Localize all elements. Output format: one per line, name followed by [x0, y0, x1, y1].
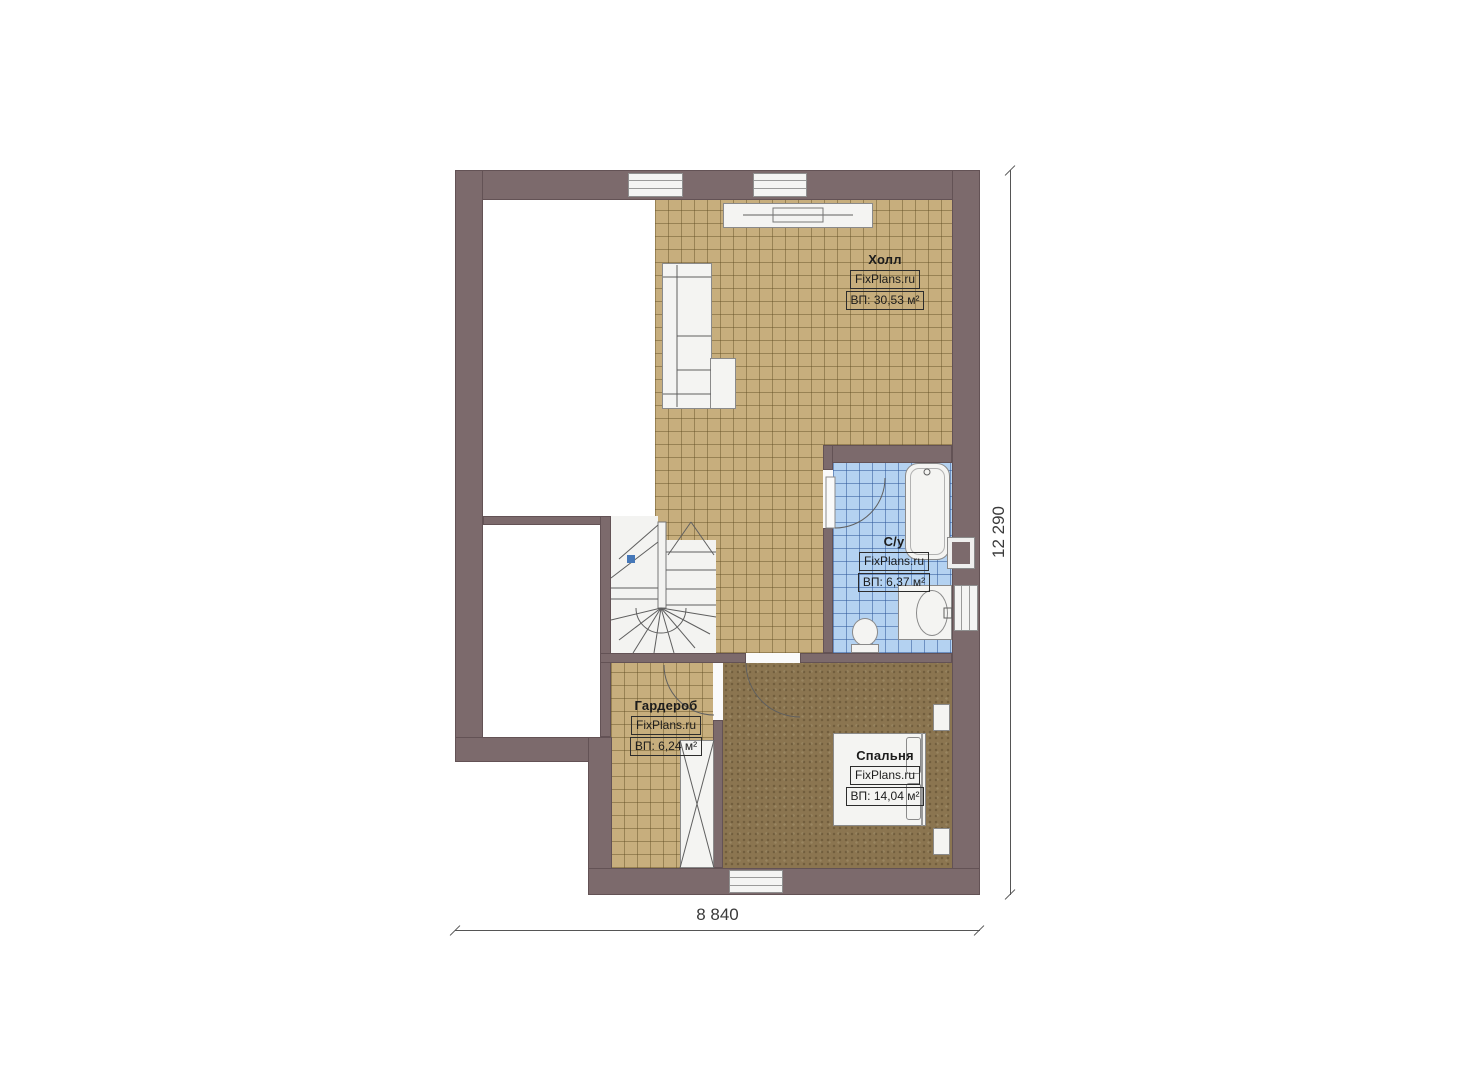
dimension-height-label: 12 290	[979, 492, 1019, 572]
inner-wall-corridor-left	[600, 653, 746, 663]
bedroom-area-label: ВП: 14,04 м²	[846, 787, 925, 806]
dimension-width-label: 8 840	[455, 905, 980, 925]
wardrobe-room-name: Гардероб	[634, 698, 697, 714]
wardrobe-door-opening	[713, 663, 723, 720]
toilet-bowl	[852, 618, 878, 646]
toilet-tank	[851, 644, 879, 653]
nightstand-bottom	[933, 828, 950, 855]
closet	[680, 740, 714, 868]
bedroom-room-name: Спальня	[856, 748, 914, 764]
bathroom-wall-top	[823, 445, 952, 463]
bathroom-label: С/у FixPlans.ru ВП: 6,37 м²	[855, 534, 933, 592]
outer-wall-top	[455, 170, 980, 200]
wardrobe-bedroom-wall	[713, 720, 723, 868]
stair-well	[611, 540, 716, 653]
outer-wall-left	[455, 170, 483, 762]
window-top-left	[628, 173, 683, 197]
void-room-lower	[483, 525, 600, 737]
window-bottom	[729, 870, 783, 893]
bedroom-label: Спальня FixPlans.ru ВП: 14,04 м²	[839, 748, 931, 806]
sink-basin	[916, 590, 948, 636]
inner-wall-voidroom-right	[600, 516, 611, 737]
wardrobe-label: Гардероб FixPlans.ru ВП: 6,24 м²	[625, 698, 707, 756]
wardrobe-watermark: FixPlans.ru	[631, 716, 701, 735]
bathroom-wall-left-upper	[823, 445, 833, 470]
inner-wall-voidroom-top	[483, 516, 611, 525]
hall-room-name: Холл	[868, 252, 901, 268]
window-top-right	[753, 173, 807, 197]
bedroom-watermark: FixPlans.ru	[850, 766, 920, 785]
outer-wall-right	[952, 170, 980, 895]
stair-landing	[611, 516, 658, 540]
sofa-chaise	[710, 358, 736, 409]
inner-wall-corridor-right	[800, 653, 952, 663]
hall-label: Холл FixPlans.ru ВП: 30,53 м²	[840, 252, 930, 310]
hall-watermark: FixPlans.ru	[850, 270, 920, 289]
bathroom-watermark: FixPlans.ru	[859, 552, 929, 571]
floor-plan: Холл FixPlans.ru ВП: 30,53 м² С/у FixPla…	[455, 170, 980, 895]
hall-area-label: ВП: 30,53 м²	[846, 291, 925, 310]
vent-shaft	[948, 538, 974, 568]
window-right	[954, 585, 978, 631]
wardrobe-area-label: ВП: 6,24 м²	[630, 737, 702, 756]
bathroom-room-name: С/у	[884, 534, 905, 550]
dimension-width-line	[455, 930, 980, 931]
nightstand-top	[933, 704, 950, 731]
void-room-upper	[483, 200, 655, 516]
outer-wall-bottom	[588, 868, 980, 895]
bathroom-wall-left-lower	[823, 528, 833, 653]
bathroom-door-opening	[823, 470, 833, 528]
radiator	[723, 203, 873, 228]
bathroom-area-label: ВП: 6,37 м²	[858, 573, 930, 592]
sofa	[662, 263, 712, 409]
bedroom-door-opening	[746, 653, 800, 663]
